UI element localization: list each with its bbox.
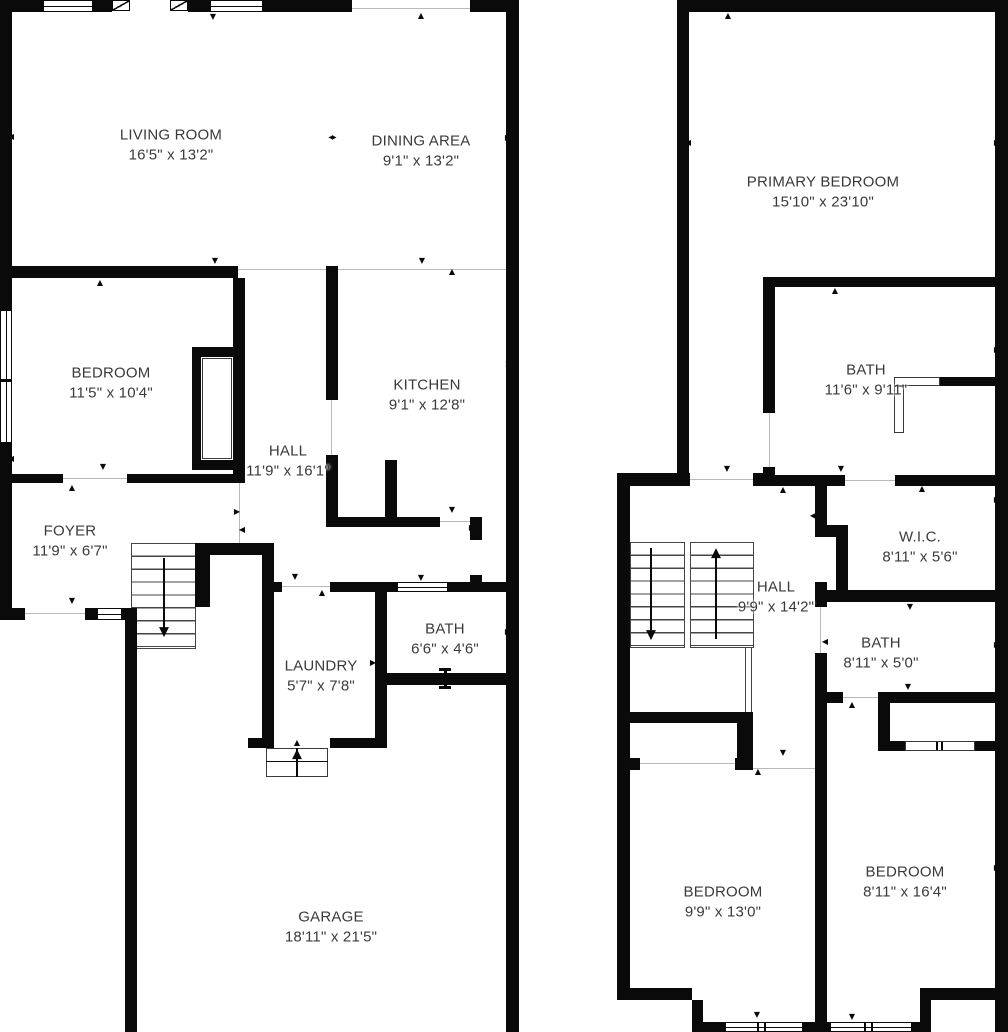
wall <box>617 988 692 1000</box>
window-divider <box>764 1022 766 1032</box>
stair-up-arrow-icon: ▲ <box>292 748 302 761</box>
closet <box>202 358 232 459</box>
wall <box>940 377 995 386</box>
window <box>397 582 448 592</box>
window-marker-icon: ◀ <box>767 346 773 354</box>
room-dims: 11'5" x 10'4" <box>69 383 153 403</box>
room-dims: 16'5" x 13'2" <box>120 145 222 165</box>
wall <box>617 473 630 1000</box>
window-marker-icon: ▶ <box>506 360 512 368</box>
wall <box>330 582 375 592</box>
opening-line <box>238 269 326 270</box>
window-marker-icon: ◀ <box>685 139 691 147</box>
wall <box>735 758 753 770</box>
window-marker-icon: ◀ <box>8 455 14 463</box>
opening-line <box>352 8 470 9</box>
window-marker-icon: ▼ <box>849 1013 855 1021</box>
wall <box>0 608 25 620</box>
room-label-foyer: FOYER 11'9" x 6'7" <box>32 522 107 561</box>
room-dims: 8'11" x 5'0" <box>843 653 918 673</box>
opening-line <box>640 763 735 764</box>
room-label-primary-bath: BATH 11'6" x 9'11" <box>825 361 908 400</box>
window-marker-icon: ▶ <box>994 864 1000 872</box>
wall <box>448 582 506 592</box>
room-label-bedroom-left: BEDROOM 9'9" x 13'0" <box>684 883 763 922</box>
door-marker-icon: ▼ <box>724 465 730 473</box>
door-marker-icon: ▲ <box>919 485 925 493</box>
room-name: PRIMARY BEDROOM <box>747 173 899 193</box>
wall <box>248 738 267 748</box>
opening-line <box>845 480 895 481</box>
room-name: FOYER <box>32 522 107 542</box>
door-marker-icon <box>439 668 451 671</box>
wall <box>326 266 338 400</box>
wall <box>895 475 1008 486</box>
window-marker-icon: ▶ <box>994 139 1000 147</box>
window-marker-icon: ◀ <box>128 934 134 942</box>
window-marker-icon: ▼ <box>418 574 424 582</box>
room-dims: 8'11" x 5'6" <box>882 547 957 567</box>
room-name: BEDROOM <box>863 863 947 883</box>
room-name: BATH <box>411 620 479 640</box>
door-marker-icon: ▲ <box>418 12 424 20</box>
room-label-bath: BATH 6'6" x 4'6" <box>411 620 479 659</box>
wall <box>10 266 238 278</box>
room-name: BATH <box>825 361 908 381</box>
door-marker-icon: ▼ <box>449 506 455 514</box>
window-marker-icon: ▼ <box>754 1011 760 1019</box>
room-dims: 6'6" x 4'6" <box>411 639 479 659</box>
room-label-primary-bedroom: PRIMARY BEDROOM 15'10" x 23'10" <box>747 173 899 212</box>
room-label-laundry: LAUNDRY 5'7" x 7'8" <box>285 657 358 696</box>
room-name: GARAGE <box>285 908 377 928</box>
window-marker-icon: ▶ <box>509 933 515 941</box>
wall <box>815 590 1008 602</box>
room-name: LIVING ROOM <box>120 126 222 146</box>
door-marker-icon: ▲ <box>849 701 855 709</box>
wall <box>920 988 1008 1000</box>
wall <box>93 0 112 12</box>
window-divider <box>0 379 12 382</box>
window <box>43 0 93 12</box>
window-marker-icon: ▶ <box>505 628 511 636</box>
stair-down-arrow-icon: ▼ <box>159 626 169 639</box>
door-marker-icon <box>439 686 451 689</box>
wall <box>0 0 12 310</box>
floorplan-canvas: ▼ ▲ ▼ ▲ ◀ ◀▶ ▶ ▼ ▲ ▼ ▲ ◀ ▶ ◀ ▼ ▲ ▶ <box>0 0 1008 1032</box>
opening-line <box>753 768 815 769</box>
wall <box>210 543 262 555</box>
window-marker-icon: ▶ <box>505 134 511 142</box>
wall <box>233 278 245 483</box>
wall <box>125 608 137 1032</box>
window <box>0 310 12 443</box>
door-marker-icon: ▲ <box>755 768 761 776</box>
room-name: BATH <box>843 634 918 654</box>
door-marker-icon: ▶ <box>234 508 240 516</box>
stair-direction-stem <box>163 558 165 628</box>
door-marker-icon: ▲ <box>97 279 103 287</box>
opening-line <box>25 613 85 614</box>
door-marker-icon: ▼ <box>780 749 786 757</box>
room-label-kitchen: KITCHEN 9'1" x 12'8" <box>389 376 465 415</box>
wall <box>836 525 848 590</box>
window <box>97 608 122 620</box>
room-name: DINING AREA <box>372 132 471 152</box>
opening-line <box>440 521 470 522</box>
wall <box>628 712 750 723</box>
door-marker-icon: ▼ <box>905 683 911 691</box>
room-name: HALL <box>246 442 330 462</box>
room-dims: 9'9" x 13'0" <box>684 902 763 922</box>
door-marker-icon: ▲ <box>449 268 455 276</box>
window-divider <box>871 1022 873 1032</box>
door-marker-icon: ▼ <box>838 465 844 473</box>
stair-railing <box>684 542 691 648</box>
patio-door-panel-icon <box>112 0 130 11</box>
door-marker-icon: ◀ <box>810 512 816 520</box>
closet-door-divider <box>941 742 943 750</box>
wall <box>692 1022 725 1032</box>
wall <box>878 692 1008 703</box>
room-name: HALL <box>738 578 814 598</box>
stair-direction-stem <box>650 548 652 633</box>
room-dims: 5'7" x 7'8" <box>285 676 358 696</box>
window-marker-icon: ▶ <box>370 659 376 667</box>
room-dims: 11'9" x 6'7" <box>32 541 107 561</box>
room-name: W.I.C. <box>882 528 957 548</box>
opening-line <box>331 400 332 455</box>
room-label-bedroom-right: BEDROOM 8'11" x 16'4" <box>863 863 947 902</box>
closet-sliding-doors <box>905 741 975 751</box>
room-dims: 8'11" x 16'4" <box>863 882 947 902</box>
room-dims: 9'9" x 14'2" <box>738 597 814 617</box>
wall <box>10 474 63 483</box>
wall <box>326 517 440 527</box>
wall <box>753 473 773 486</box>
wall <box>195 543 210 607</box>
opening-span-icon: ◀▶ <box>328 134 335 142</box>
room-name: LAUNDRY <box>285 657 358 677</box>
stair-railing <box>745 648 752 712</box>
room-dims: 11'6" x 9'11" <box>825 380 908 400</box>
door-marker-icon: ▲ <box>294 739 300 747</box>
wall <box>375 582 387 748</box>
wall <box>617 758 640 770</box>
window-marker-icon: ◀ <box>8 133 14 141</box>
wall <box>262 543 274 748</box>
door-marker-icon: ▼ <box>69 597 75 605</box>
door-marker-icon: ▼ <box>210 13 216 21</box>
door-marker-icon: ▶ <box>469 524 475 532</box>
stair-up-arrow-icon: ▲ <box>711 547 721 560</box>
wall <box>920 1000 931 1032</box>
wall <box>975 741 1008 751</box>
door-marker-icon: ▶ <box>820 498 826 506</box>
window-marker-icon: ▶ <box>994 641 1000 649</box>
room-dims: 11'9" x 16'1" <box>246 461 330 481</box>
room-name: BEDROOM <box>684 883 763 903</box>
wall <box>192 460 233 470</box>
room-name: KITCHEN <box>389 376 465 396</box>
door-marker-icon: ▼ <box>212 257 218 265</box>
wall <box>763 277 1008 287</box>
room-label-living-room: LIVING ROOM 16'5" x 13'2" <box>120 126 222 165</box>
room-dims: 15'10" x 23'10" <box>747 192 899 212</box>
room-label-bath: BATH 8'11" x 5'0" <box>843 634 918 673</box>
opening-line <box>63 478 127 479</box>
window-marker-icon: ◀ <box>617 872 623 880</box>
wall <box>192 357 201 460</box>
room-label-wic: W.I.C. 8'11" x 5'6" <box>882 528 957 567</box>
opening-line <box>843 697 878 698</box>
room-dims: 9'1" x 13'2" <box>372 151 471 171</box>
door-marker-icon: ▲ <box>725 12 731 20</box>
window-marker-icon: ▶ <box>994 346 1000 354</box>
wall <box>995 0 1008 1032</box>
wall <box>815 702 827 1032</box>
room-label-hall: HALL 9'9" x 14'2" <box>738 578 814 617</box>
wall <box>274 582 282 592</box>
wall <box>815 486 827 527</box>
stair-down-arrow-icon: ▼ <box>646 629 656 642</box>
wall <box>375 582 397 592</box>
wall <box>0 443 12 608</box>
wall <box>506 0 519 1032</box>
door-marker-icon: ▲ <box>319 589 325 597</box>
room-label-garage: GARAGE 18'11" x 21'5" <box>285 908 377 947</box>
window-marker-icon: ◀ <box>381 627 387 635</box>
wall <box>677 0 689 484</box>
door-marker-icon: ▲ <box>69 484 75 492</box>
room-label-hall: HALL 11'9" x 16'1" <box>246 442 330 481</box>
wall <box>85 608 97 620</box>
wall <box>912 1022 920 1032</box>
opening-line <box>338 269 506 270</box>
wall <box>263 0 352 12</box>
closet-door-divider <box>936 742 938 750</box>
room-dims: 9'1" x 12'8" <box>389 395 465 415</box>
window-marker-icon: ▶ <box>994 496 1000 504</box>
door-marker-icon: ▲ <box>832 287 838 295</box>
wall <box>192 347 233 357</box>
window-divider <box>864 1022 866 1032</box>
patio-door-panel-icon <box>170 0 188 11</box>
wall <box>878 701 890 741</box>
window-marker-icon: ◀ <box>327 359 333 367</box>
door-marker-icon: ◀ <box>239 526 245 534</box>
window-divider <box>757 1022 759 1032</box>
door-marker-icon: ▼ <box>419 257 425 265</box>
wall <box>330 738 375 748</box>
opening-line <box>820 607 821 653</box>
wall <box>188 0 210 12</box>
window-marker-icon: ◀ <box>265 659 271 667</box>
door-marker-icon: ▲ <box>780 486 786 494</box>
room-label-dining-area: DINING AREA 9'1" x 13'2" <box>372 132 471 171</box>
stair-direction-stem <box>715 554 717 639</box>
room-label-bedroom: BEDROOM 11'5" x 10'4" <box>69 364 153 403</box>
room-name: BEDROOM <box>69 364 153 384</box>
room-dims: 18'11" x 21'5" <box>285 927 377 947</box>
door-marker-icon: ▼ <box>100 463 106 471</box>
door-marker-icon: ▼ <box>292 573 298 581</box>
wall <box>878 741 905 751</box>
window <box>210 0 263 12</box>
wall <box>617 473 690 486</box>
opening-line <box>769 413 770 467</box>
wall <box>127 474 233 483</box>
opening-line <box>690 479 753 480</box>
door-marker-icon: ▼ <box>907 603 913 611</box>
door-marker-icon: ◀ <box>822 638 828 646</box>
